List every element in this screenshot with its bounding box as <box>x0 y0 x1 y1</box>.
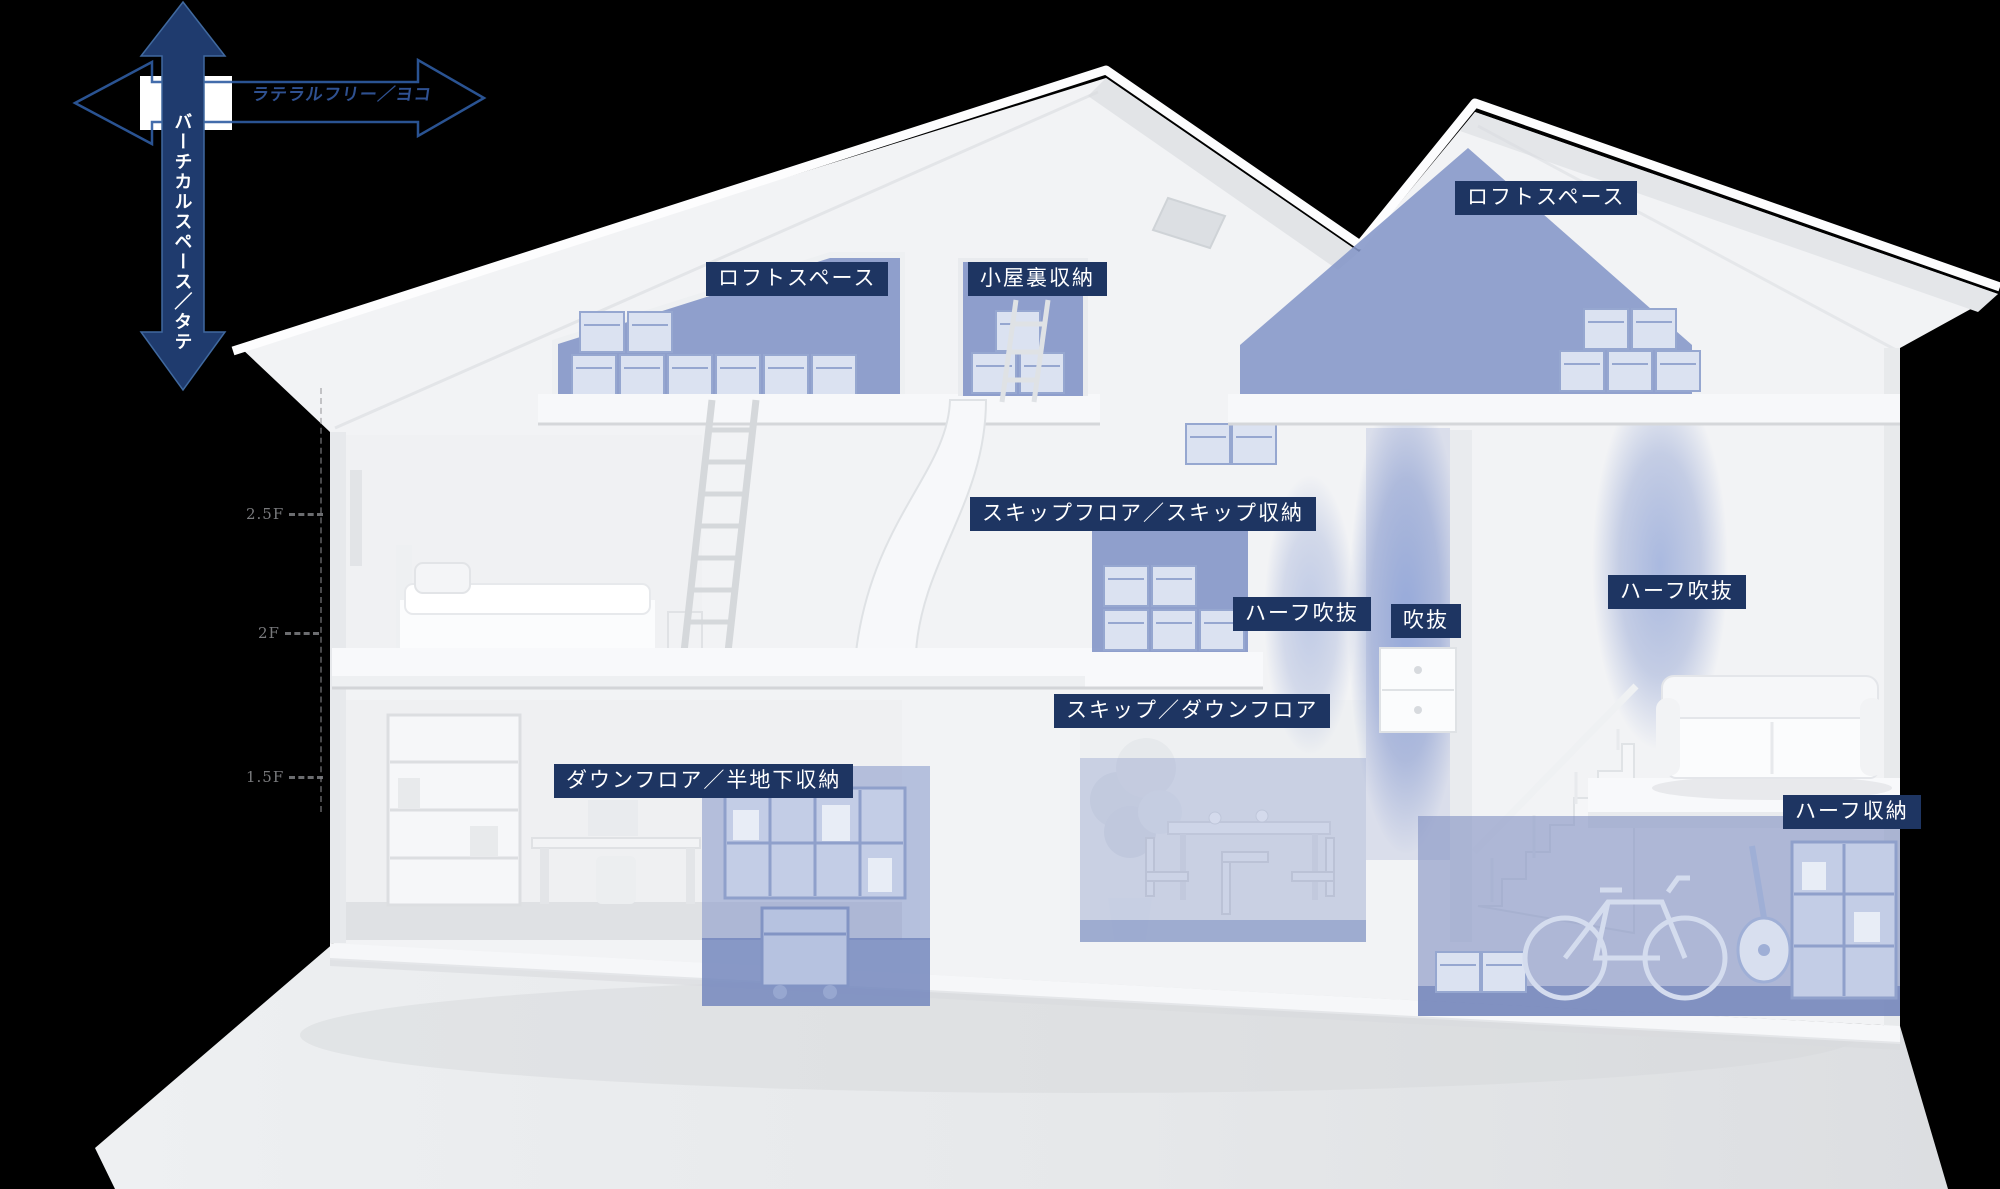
floor-marker-dash <box>285 632 319 635</box>
room-label-skip-floor: スキップフロア／スキップ収納 <box>970 497 1316 531</box>
vertical-axis-label: バーチカルスペース／タテ <box>170 112 193 352</box>
floor-marker-label: 2.5F <box>246 505 284 523</box>
room-label-loft-left: ロフトスペース <box>706 262 888 296</box>
room-label-down-floor: ダウンフロア／半地下収納 <box>554 764 853 798</box>
bookshelf <box>388 715 520 905</box>
floor-marker-dash <box>289 776 323 779</box>
room-label-skip-down-floor: スキップ／ダウンフロア <box>1054 694 1330 728</box>
storage-cart <box>762 908 848 999</box>
sofa <box>1656 676 1884 778</box>
cube-shelf <box>1792 842 1896 998</box>
room-label-attic-storage: 小屋裏収納 <box>968 262 1107 296</box>
bedroom-2f <box>346 435 702 665</box>
floor-marker-level-2f: 2F <box>258 624 319 642</box>
half-storage-zone <box>1418 816 1900 1016</box>
dresser <box>1380 648 1456 732</box>
down-floor-zone <box>702 766 930 1006</box>
floor-level-guide-line <box>320 388 322 812</box>
room-label-loft-right: ロフトスペース <box>1455 181 1637 215</box>
room-label-half-void-right: ハーフ吹抜 <box>1608 575 1746 609</box>
floor-marker-level-1-5f: 1.5F <box>246 768 323 786</box>
room-label-half-storage: ハーフ収納 <box>1783 795 1921 829</box>
room-label-void: 吹抜 <box>1391 604 1461 638</box>
room-label-half-void-left: ハーフ吹抜 <box>1233 597 1371 631</box>
floor-marker-label: 2F <box>258 624 280 642</box>
floor-slab-2f <box>332 648 1100 688</box>
storage-shelf <box>725 788 905 898</box>
floor-marker-level-2-5f: 2.5F <box>246 505 323 523</box>
horizontal-axis-label: ラテラルフリー／ヨコ <box>250 80 434 105</box>
scene: バーチカルスペース／タテ ラテラルフリー／ヨコ ロフトスペース小屋裏収納ロフトス… <box>0 0 2000 1189</box>
floor-marker-label: 1.5F <box>246 768 284 786</box>
floor-marker-dash <box>289 513 323 516</box>
